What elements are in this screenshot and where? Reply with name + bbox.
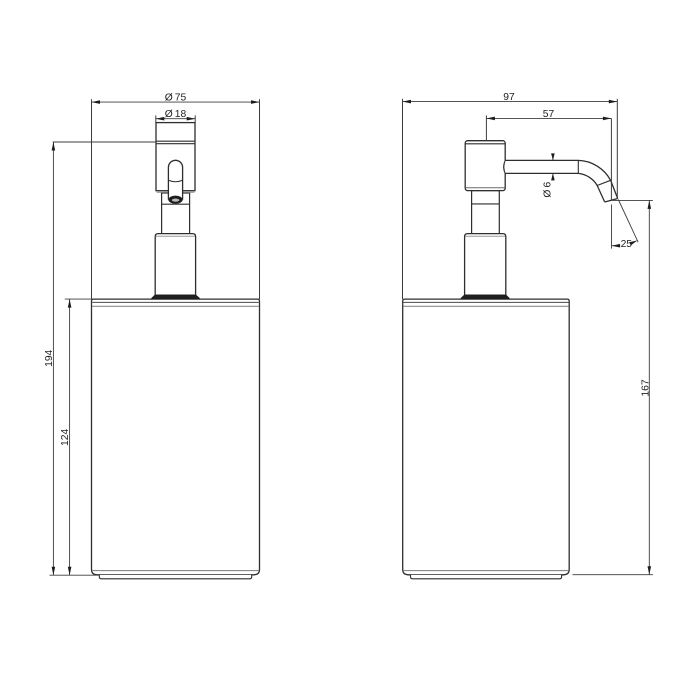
svg-text:Ø 6: Ø 6 [543, 182, 554, 198]
svg-text:Ø 18: Ø 18 [165, 109, 187, 120]
svg-text:167: 167 [641, 379, 652, 396]
svg-text:97: 97 [503, 92, 515, 103]
svg-text:57: 57 [543, 109, 555, 120]
svg-text:Ø 75: Ø 75 [165, 93, 187, 104]
svg-text:194: 194 [44, 349, 55, 366]
svg-text:124: 124 [60, 429, 71, 446]
